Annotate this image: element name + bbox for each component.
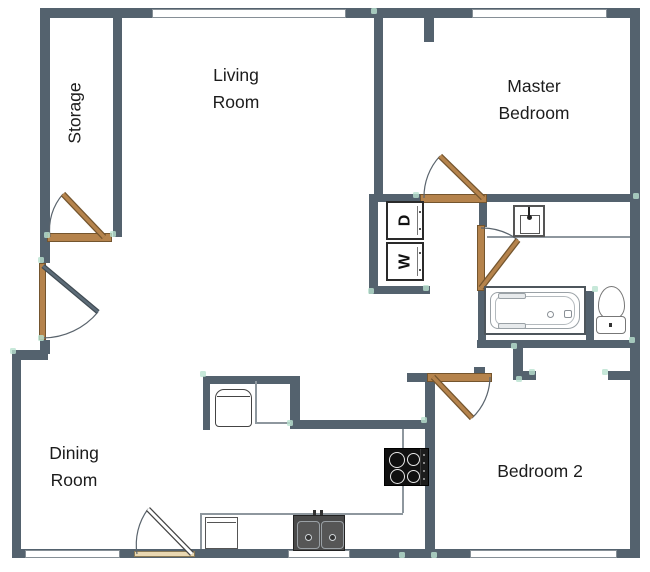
window-bottom-kitchen <box>288 550 350 558</box>
bathroom-door <box>477 225 485 291</box>
tub-drain <box>547 311 554 318</box>
junction-mark <box>371 8 377 14</box>
master-door-arc <box>424 156 440 198</box>
burner <box>390 469 405 484</box>
kitchen-counter-line-left <box>200 513 202 549</box>
junction-mark <box>633 193 639 199</box>
junction-mark <box>423 285 429 291</box>
wall-laundry-left <box>369 194 378 294</box>
junction-mark <box>44 232 50 238</box>
room-label-dining: Dining Room <box>49 440 99 494</box>
room-label-living: Living Room <box>213 62 260 116</box>
kitchen-sink <box>293 515 345 551</box>
junction-mark <box>511 343 517 349</box>
sink-basin-left <box>297 521 320 549</box>
room-label-bedroom2: Bedroom 2 <box>497 458 583 485</box>
junction-mark <box>200 371 206 377</box>
toilet <box>596 284 626 336</box>
entry-door-leaf <box>43 266 98 312</box>
junction-mark <box>413 192 419 198</box>
junction-mark <box>368 288 374 294</box>
wall-living-master-divider <box>374 18 383 202</box>
fridge-nook-line-v <box>255 381 257 424</box>
junction-mark <box>431 552 437 558</box>
wall-kitchen-top <box>290 420 425 429</box>
junction-mark <box>602 369 608 375</box>
wall-left-lower <box>12 350 21 558</box>
burner <box>407 453 420 466</box>
junction-mark <box>421 417 427 423</box>
junction-mark <box>38 335 44 341</box>
washer: W <box>386 242 424 281</box>
patio-door <box>134 551 195 557</box>
junction-mark <box>10 348 16 354</box>
storage-door <box>47 233 112 242</box>
wall-tub-stub <box>586 291 594 343</box>
burner <box>407 470 420 483</box>
wall-left-upper <box>40 8 50 263</box>
junction-mark <box>629 337 635 343</box>
wall-living-south <box>203 376 300 384</box>
storage-door-leaf <box>63 194 104 237</box>
storage-door-arc <box>50 194 63 237</box>
wall-storage-right <box>113 18 122 237</box>
bedroom2-door <box>427 373 492 382</box>
bathroom-sink <box>513 205 545 237</box>
floor-plan: D W Storage <box>0 0 650 572</box>
wall-bedroom2-door-stub <box>407 373 427 382</box>
wall-kitchen-left <box>203 376 210 430</box>
window-bottom-bedroom2 <box>470 550 617 558</box>
window-top-master <box>472 9 607 18</box>
junction-mark <box>287 420 293 426</box>
entry-door <box>39 263 46 340</box>
bedroom2-door-arc <box>472 377 490 418</box>
wall-laundry-bottom <box>369 286 430 294</box>
window-top-living <box>152 9 346 18</box>
junction-mark <box>38 257 44 263</box>
dryer-door-line <box>417 206 418 235</box>
dryer: D <box>386 201 424 240</box>
wall-right <box>630 8 640 558</box>
burner <box>389 452 405 468</box>
entry-door-arc <box>43 312 98 338</box>
junction-mark <box>529 369 535 375</box>
room-label-master: Master Bedroom <box>498 73 569 127</box>
dishwasher <box>205 517 238 549</box>
sink-basin-right <box>321 521 344 549</box>
bathroom-door-leaf <box>481 240 518 288</box>
tub-ledge-bottom <box>498 323 526 329</box>
fridge-nook-line-h <box>255 422 291 424</box>
wall-bath-bottom <box>477 340 640 348</box>
bedroom2-door-leaf <box>433 377 472 418</box>
junction-mark <box>399 552 405 558</box>
washer-door-line <box>417 247 418 276</box>
junction-mark <box>110 231 116 237</box>
wall-closet-stub-right <box>608 371 630 380</box>
sink-faucet-icon <box>313 510 316 515</box>
bathtub <box>484 286 586 335</box>
wall-master-stub <box>424 18 434 42</box>
wall-bath-top <box>487 194 640 202</box>
toilet-bowl <box>598 286 625 320</box>
stove-controls <box>420 449 428 485</box>
patio-door-leaf <box>148 509 192 554</box>
junction-mark <box>516 376 522 382</box>
window-bottom-dining <box>25 550 120 558</box>
refrigerator <box>215 389 252 427</box>
room-label-storage: Storage <box>65 82 86 143</box>
bath-counter-line <box>487 236 630 238</box>
tub-ledge-top <box>498 293 526 299</box>
stove <box>384 448 429 486</box>
master-bedroom-door <box>420 194 487 203</box>
patio-door-arc <box>136 509 148 554</box>
junction-mark <box>592 286 598 292</box>
master-door-leaf <box>440 156 483 198</box>
